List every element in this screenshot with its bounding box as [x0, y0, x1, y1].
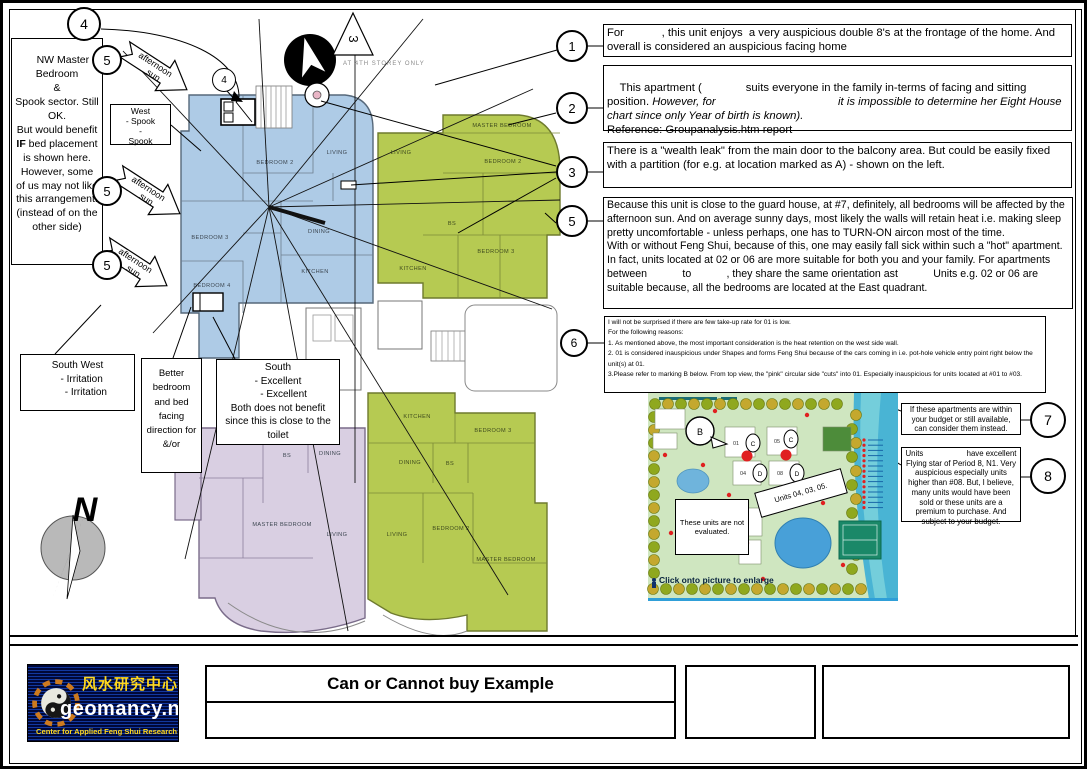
- room-label: BS: [448, 221, 456, 227]
- room-label: BEDROOM 2: [484, 159, 521, 165]
- room-label: MASTER BEDROOM: [252, 522, 311, 528]
- note-8: Units have excellent Flying star of Peri…: [901, 447, 1021, 522]
- footer-box-small: [685, 665, 816, 739]
- marker-3: 3: [556, 156, 588, 188]
- orientation-triangle: 3: [333, 13, 373, 55]
- compass-n-label: N: [73, 491, 99, 529]
- note-1: For , this unit enjoys a very auspicious…: [603, 24, 1072, 57]
- report-page: BEDROOM 2 LIVING DINING KITCHEN BEDROOM …: [0, 0, 1087, 769]
- note-6: I will not be surprised if there are few…: [604, 316, 1046, 393]
- plan-compass-icon: [284, 34, 336, 86]
- service-core: [306, 301, 557, 391]
- map-underline: [648, 598, 898, 601]
- footer-box-large: [822, 665, 1070, 739]
- svg-text:05: 05: [774, 439, 780, 445]
- room-label: BEDROOM 2: [256, 160, 293, 166]
- room-label: DINING: [399, 460, 421, 466]
- room-label: BEDROOM 4: [193, 283, 230, 289]
- room-label: MASTER BEDROOM: [472, 123, 531, 129]
- marker-5c-left: 5: [92, 250, 122, 280]
- svg-text:C: C: [751, 441, 756, 448]
- marker-5a-left: 5: [92, 45, 122, 75]
- marker-2: 2: [556, 92, 588, 124]
- room-label: KITCHEN: [301, 269, 328, 275]
- svg-text:C: C: [789, 437, 794, 444]
- separator-line-top: [9, 635, 1078, 637]
- southwest-note: South West - Irritation - Irritation: [20, 354, 135, 411]
- marker-4-left: 4: [67, 7, 101, 41]
- bed-icon-2: [193, 293, 223, 311]
- report-title: Can or Cannot buy Example: [207, 667, 674, 703]
- unit-green-bottom: KITCHEN BEDROOM 3 DINING BS LIVING BEDRO…: [368, 393, 547, 631]
- room-label: BEDROOM 3: [191, 235, 228, 241]
- room-label: BS: [283, 453, 291, 459]
- note-7: If these apartments are within your budg…: [901, 403, 1021, 435]
- room-label: BEDROOM 2: [432, 526, 469, 532]
- title-block-empty-row: [207, 703, 674, 739]
- south-note: South - Excellent - Excellent Both does …: [216, 359, 340, 445]
- room-label: DINING: [308, 229, 330, 235]
- marker-5b-left: 5: [92, 176, 122, 206]
- map-not-evaluated-note: These units are not evaluated.: [675, 499, 749, 555]
- svg-text:D: D: [758, 471, 763, 478]
- note-4: Because this unit is close to the guard …: [603, 197, 1073, 309]
- logo-tagline-text: Center for Applied Feng Shui Research: [36, 727, 179, 736]
- svg-text:B: B: [697, 427, 703, 437]
- marker-6: 6: [560, 329, 588, 357]
- marker-8: 8: [1030, 458, 1066, 494]
- unit-lavender: BS DINING MASTER BEDROOM LIVING: [175, 428, 365, 632]
- svg-text:3: 3: [346, 35, 361, 42]
- separator-line-bottom: [9, 644, 1078, 646]
- logo-chinese-text: 风水研究中心: [82, 673, 178, 694]
- marker-7: 7: [1030, 402, 1066, 438]
- marker-1: 1: [556, 30, 588, 62]
- compass-rose: N: [41, 491, 105, 599]
- marker-5-right: 5: [556, 205, 588, 237]
- room-label: BS: [446, 461, 454, 467]
- note-2: This apartment ( suits everyone in the f…: [603, 65, 1072, 131]
- nw-master-note: NW Master Bedroom & Spook sector. Still …: [11, 38, 103, 265]
- room-label: BEDROOM 3: [477, 249, 514, 255]
- tennis-court: [839, 521, 881, 559]
- marker-4-plan: 4: [212, 68, 236, 92]
- map-caption[interactable]: Click onto picture to enlarge: [659, 575, 879, 585]
- note-3: There is a "wealth leak" from the main d…: [603, 142, 1072, 188]
- room-label: BEDROOM 3: [474, 428, 511, 434]
- bed-icon: [221, 99, 255, 125]
- west-spook-note: West - Spook - Spook: [110, 104, 171, 145]
- room-label: KITCHEN: [403, 414, 430, 420]
- svg-text:01: 01: [733, 441, 739, 447]
- room-label: LIVING: [327, 150, 348, 156]
- better-bedroom-note: Better bedroom and bed facing direction …: [141, 358, 202, 473]
- title-block: Can or Cannot buy Example: [205, 665, 676, 739]
- room-label: LIVING: [387, 532, 408, 538]
- pink-dot-marker: [305, 83, 329, 107]
- storey-note: AT 4TH STOREY ONLY: [343, 61, 425, 67]
- room-label: KITCHEN: [399, 266, 426, 272]
- svg-text:04: 04: [740, 471, 746, 477]
- geomancy-logo[interactable]: 风水研究中心 geomancy.net Center for Applied F…: [27, 664, 179, 742]
- person-icon: [652, 578, 656, 588]
- room-label: DINING: [319, 451, 341, 457]
- svg-text:08: 08: [777, 471, 783, 477]
- logo-brand-text: geomancy.net: [60, 698, 179, 721]
- svg-text:D: D: [795, 471, 800, 478]
